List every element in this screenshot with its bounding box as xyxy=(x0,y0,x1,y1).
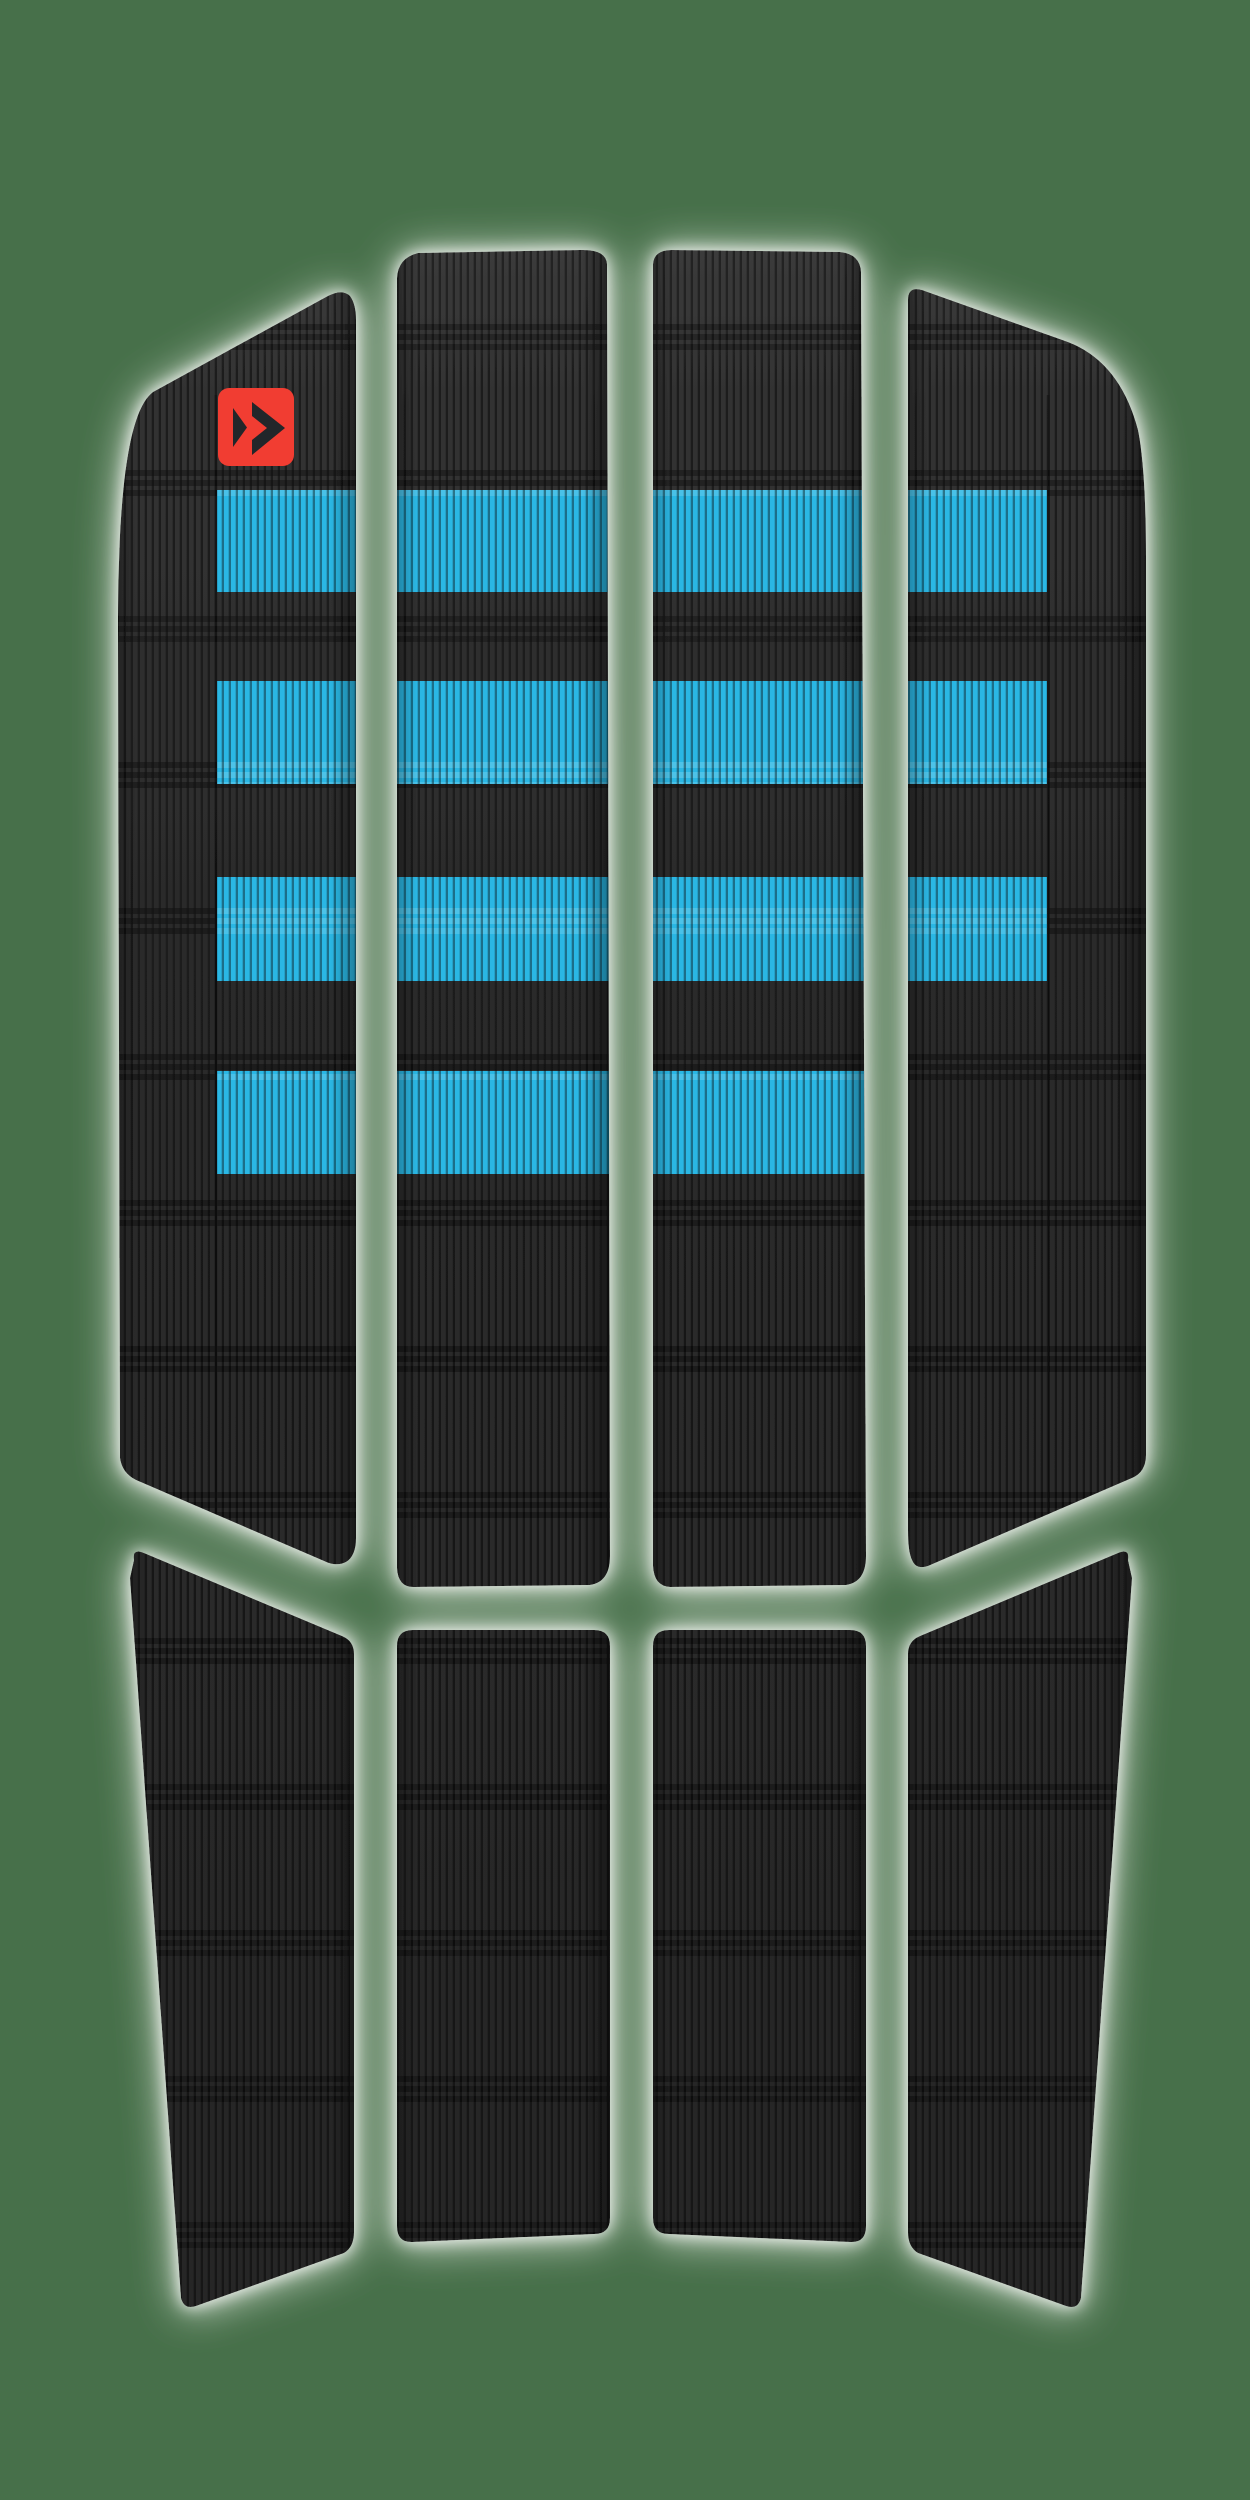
product-photo-stage xyxy=(0,0,1250,2500)
logo-badge xyxy=(218,388,294,466)
bottom-strip-inner-right xyxy=(650,1628,870,2248)
top-strip-outer-right xyxy=(905,280,1150,1580)
traction-pad-image xyxy=(0,0,1250,2500)
top-strip-outer-left xyxy=(110,280,366,1580)
bottom-strip-inner-left xyxy=(395,1628,613,2248)
top-strip-inner-left xyxy=(395,245,613,1595)
top-strip-inner-right xyxy=(650,245,870,1595)
